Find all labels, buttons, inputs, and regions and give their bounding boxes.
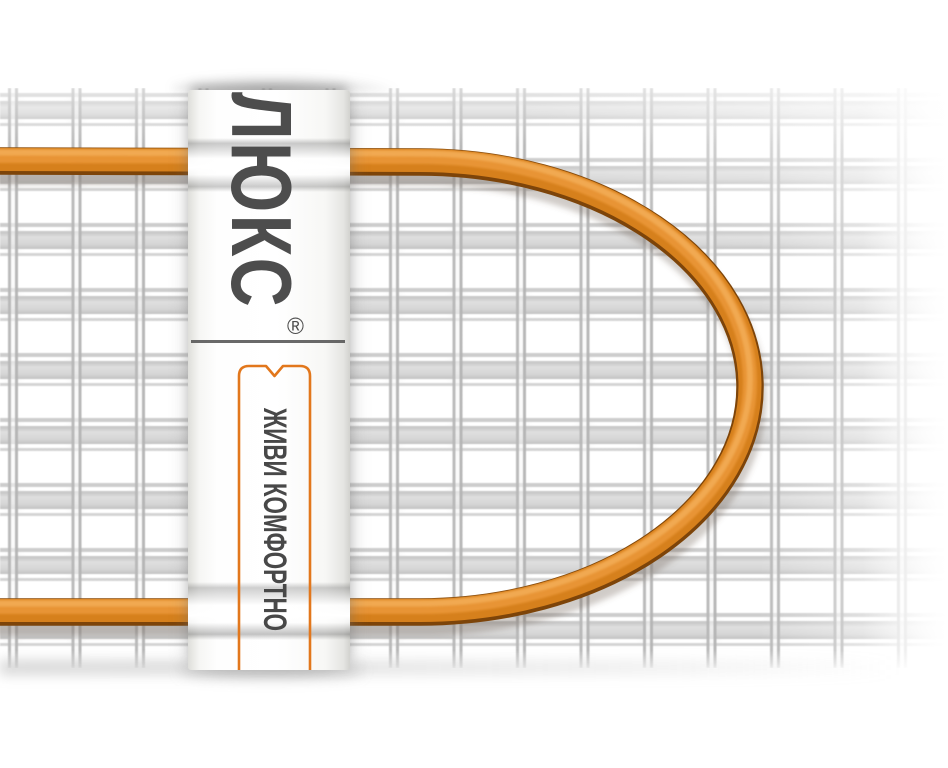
brand-label-band: ЛЮКС ® ЖИВИ КОМФОРТНО [188, 90, 350, 670]
slogan-text: ЖИВИ КОМФОРТНО [259, 408, 291, 631]
heating-cable [0, 0, 948, 768]
heating-mat-product-photo: ЛЮКС ® ЖИВИ КОМФОРТНО [0, 0, 948, 768]
cable-body [0, 160, 750, 611]
